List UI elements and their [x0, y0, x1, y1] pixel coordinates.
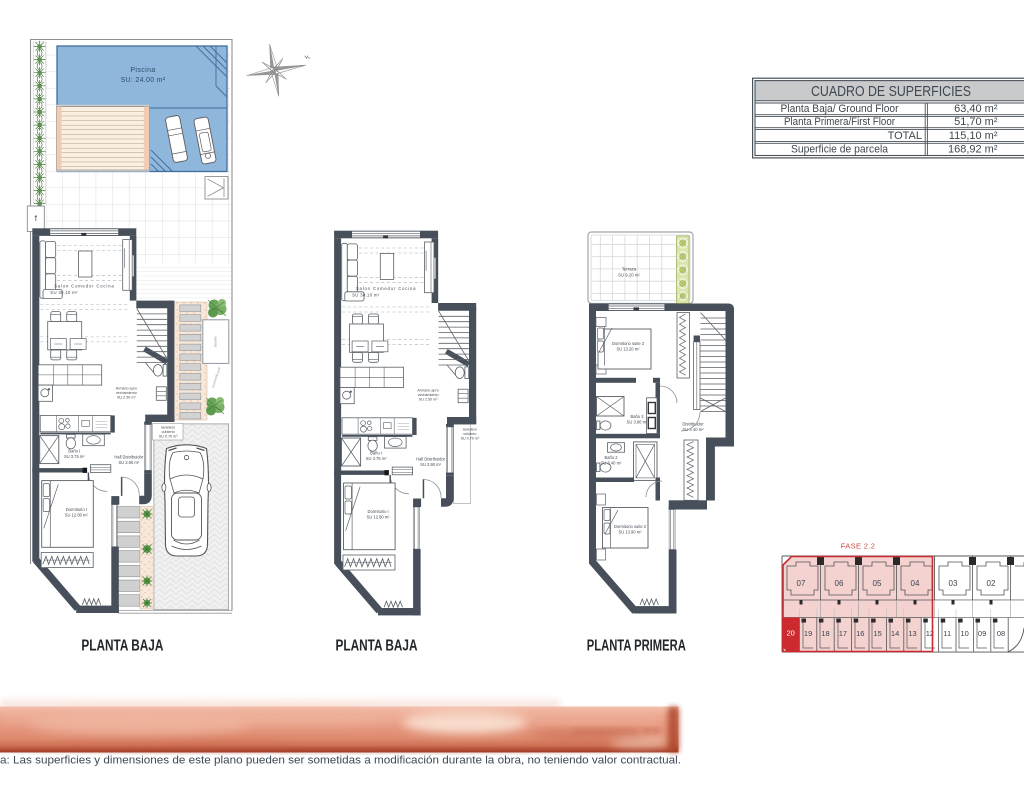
svg-text:SU: 24.00 m²: SU: 24.00 m² — [121, 77, 166, 84]
svg-text:17: 17 — [839, 629, 847, 638]
svg-text:63,40 m²: 63,40 m² — [954, 103, 998, 115]
svg-text:SU 13.90 m²: SU 13.90 m² — [619, 530, 643, 535]
svg-text:115,10 m²: 115,10 m² — [949, 130, 998, 142]
svg-text:cubierto: cubierto — [463, 432, 476, 436]
svg-text:Hall Distribuidor: Hall Distribuidor — [416, 457, 446, 462]
svg-text:51,70 m²: 51,70 m² — [954, 116, 998, 128]
svg-text:SU 2.50 m²: SU 2.50 m² — [419, 398, 438, 402]
svg-text:Acometida gral: Acometida gral — [211, 367, 221, 389]
svg-text:06: 06 — [835, 579, 844, 588]
svg-text:13: 13 — [908, 629, 916, 638]
svg-text:Distribuidor: Distribuidor — [682, 422, 704, 427]
svg-text:TOTAL: TOTAL — [888, 130, 922, 142]
svg-text:PLANTA PRIMERA: PLANTA PRIMERA — [587, 638, 686, 655]
svg-text:lavadero: lavadero — [463, 428, 477, 432]
svg-text:SU 3.40 m²: SU 3.40 m² — [682, 427, 704, 432]
svg-text:04: 04 — [911, 579, 920, 588]
svg-text:18: 18 — [821, 629, 829, 638]
svg-text:Salon Comedor Cocina: Salon Comedor Cocina — [356, 286, 416, 291]
svg-text:19: 19 — [804, 629, 812, 638]
svg-text:a: Las superficies y dimension: a: Las superficies y dimensiones de este… — [0, 755, 681, 767]
svg-text:FASE 2.2: FASE 2.2 — [841, 542, 875, 551]
svg-text:Armario apro: Armario apro — [417, 389, 438, 393]
svg-text:Planta Baja/ Ground Floor: Planta Baja/ Ground Floor — [781, 103, 899, 115]
svg-text:Dormitorio suite 2: Dormitorio suite 2 — [614, 524, 647, 529]
svg-text:07: 07 — [797, 579, 806, 588]
svg-text:SU 30.10 m²: SU 30.10 m² — [352, 293, 380, 298]
svg-text:PLANTA BAJA: PLANTA BAJA — [81, 638, 163, 655]
svg-text:03: 03 — [949, 579, 958, 588]
svg-text:09: 09 — [978, 629, 986, 638]
svg-text:Baño I: Baño I — [370, 451, 382, 456]
svg-text:20: 20 — [787, 629, 795, 638]
svg-text:CUADRO DE SUPERFICIES: CUADRO DE SUPERFICIES — [811, 84, 971, 100]
svg-text:14: 14 — [891, 629, 899, 638]
svg-text:SU 3.75 m²: SU 3.75 m² — [366, 456, 387, 461]
svg-text:Planta Primera/First Floor: Planta Primera/First Floor — [784, 116, 895, 128]
svg-text:11: 11 — [943, 629, 951, 638]
svg-text:PLANTA BAJA: PLANTA BAJA — [336, 638, 418, 655]
svg-text:168,92 m²: 168,92 m² — [948, 144, 998, 156]
svg-text:Terraza: Terraza — [622, 267, 637, 272]
svg-text:15: 15 — [874, 629, 882, 638]
svg-text:SU 3.80 m²: SU 3.80 m² — [627, 420, 648, 425]
svg-text:Dormitorio I: Dormitorio I — [368, 509, 389, 514]
svg-text:BOMBA: BOMBA — [214, 336, 218, 347]
svg-text:SU 9.20 m²: SU 9.20 m² — [618, 273, 640, 278]
svg-text:02: 02 — [987, 579, 996, 588]
svg-text:08: 08 — [997, 629, 1005, 638]
svg-text:SU 3.40 m²: SU 3.40 m² — [601, 461, 622, 466]
svg-text:SU 3.90 m²: SU 3.90 m² — [420, 462, 441, 467]
svg-text:10: 10 — [961, 629, 969, 638]
svg-text:SU 13.20 m²: SU 13.20 m² — [617, 347, 641, 352]
svg-text:Piscina: Piscina — [130, 67, 155, 74]
svg-text:SU 12.80 m²: SU 12.80 m² — [367, 515, 391, 520]
svg-text:vechamiento: vechamiento — [418, 393, 439, 397]
svg-text:SU 0.70 m²: SU 0.70 m² — [461, 437, 480, 441]
svg-text:05: 05 — [873, 579, 882, 588]
svg-text:16: 16 — [856, 629, 864, 638]
svg-text:Baño 3: Baño 3 — [631, 414, 645, 419]
svg-text:Superficie de parcela: Superficie de parcela — [791, 144, 889, 156]
svg-text:Baño 2: Baño 2 — [605, 455, 619, 460]
svg-text:Dormitorio suite 3: Dormitorio suite 3 — [612, 341, 645, 346]
